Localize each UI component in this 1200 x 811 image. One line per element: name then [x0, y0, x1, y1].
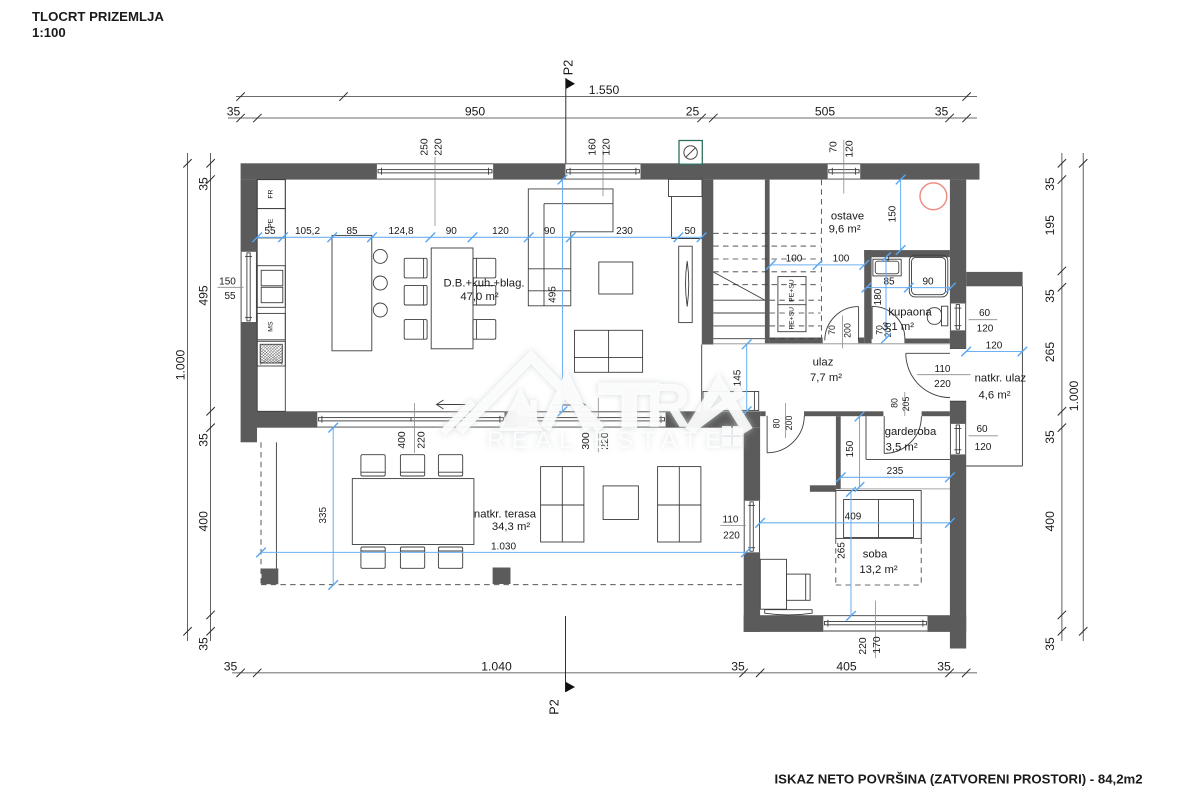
svg-text:110: 110 — [723, 515, 739, 526]
svg-text:70: 70 — [828, 141, 839, 153]
svg-text:80: 80 — [772, 419, 782, 429]
svg-text:1.000: 1.000 — [1067, 381, 1081, 412]
svg-text:120: 120 — [986, 340, 1003, 351]
svg-text:35: 35 — [196, 637, 210, 651]
svg-text:TLOCRT PRIZEMLJA: TLOCRT PRIZEMLJA — [32, 9, 164, 24]
svg-text:265: 265 — [837, 542, 848, 559]
svg-text:120: 120 — [492, 226, 509, 237]
svg-text:950: 950 — [465, 105, 486, 119]
svg-text:495: 495 — [196, 285, 210, 306]
svg-text:35: 35 — [1043, 430, 1057, 444]
svg-text:35: 35 — [731, 660, 745, 674]
svg-text:1.040: 1.040 — [481, 660, 512, 674]
svg-text:47,0 m²: 47,0 m² — [460, 291, 499, 303]
svg-text:120: 120 — [602, 138, 613, 155]
svg-text:220: 220 — [434, 138, 445, 155]
svg-text:ISKAZ NETO POVRŠINA (ZATVORENI: ISKAZ NETO POVRŠINA (ZATVORENI PROSTORI)… — [775, 772, 1143, 787]
svg-text:garderoba: garderoba — [885, 426, 937, 438]
svg-text:50: 50 — [684, 226, 696, 237]
svg-text:90: 90 — [544, 226, 556, 237]
svg-text:495: 495 — [547, 286, 558, 303]
svg-text:D.B.+kuh.+blag.: D.B.+kuh.+blag. — [443, 278, 524, 290]
svg-text:110: 110 — [935, 364, 951, 375]
svg-text:250: 250 — [420, 138, 431, 155]
svg-text:35: 35 — [1043, 637, 1057, 651]
svg-text:195: 195 — [1043, 215, 1057, 236]
svg-text:35: 35 — [227, 105, 241, 119]
svg-text:3,1 m²: 3,1 m² — [882, 321, 914, 333]
svg-text:230: 230 — [616, 226, 633, 237]
svg-text:3,5 m²: 3,5 m² — [886, 441, 918, 453]
svg-text:natkr. terasa: natkr. terasa — [474, 509, 537, 521]
svg-text:60: 60 — [976, 424, 988, 435]
svg-text:400: 400 — [1043, 511, 1057, 532]
svg-text:1.550: 1.550 — [589, 83, 620, 97]
svg-text:9,6 m²: 9,6 m² — [829, 223, 861, 235]
svg-text:405: 405 — [836, 660, 857, 674]
svg-text:124,8: 124,8 — [388, 226, 413, 237]
svg-text:265: 265 — [1043, 342, 1057, 363]
svg-text:P2: P2 — [562, 60, 576, 75]
svg-text:220: 220 — [858, 637, 869, 654]
svg-text:1:100: 1:100 — [32, 25, 66, 40]
svg-text:34,3 m²: 34,3 m² — [492, 521, 531, 533]
svg-text:150: 150 — [845, 440, 856, 457]
svg-text:35: 35 — [1043, 289, 1057, 303]
svg-text:35: 35 — [196, 433, 210, 447]
svg-text:400: 400 — [397, 431, 408, 448]
svg-text:150: 150 — [887, 205, 898, 222]
svg-text:180: 180 — [873, 288, 884, 305]
svg-text:35: 35 — [937, 660, 951, 674]
svg-text:100: 100 — [833, 254, 850, 265]
svg-text:1.030: 1.030 — [491, 541, 516, 552]
svg-text:7,7 m²: 7,7 m² — [810, 372, 842, 384]
svg-text:85: 85 — [346, 226, 358, 237]
svg-text:200: 200 — [843, 323, 853, 338]
svg-text:55: 55 — [264, 226, 276, 237]
svg-text:ulaz: ulaz — [813, 357, 834, 369]
svg-text:85: 85 — [883, 276, 895, 287]
svg-text:120: 120 — [975, 442, 992, 453]
svg-text:60: 60 — [979, 308, 991, 319]
svg-text:220: 220 — [723, 531, 740, 542]
svg-text:235: 235 — [887, 466, 904, 477]
svg-text:35: 35 — [1043, 177, 1057, 191]
svg-text:220: 220 — [934, 379, 951, 390]
svg-text:150: 150 — [219, 277, 236, 288]
svg-text:REAL ESTATE: REAL ESTATE — [487, 427, 729, 454]
svg-text:55: 55 — [224, 291, 236, 302]
svg-text:25: 25 — [686, 105, 700, 119]
svg-text:13,2 m²: 13,2 m² — [859, 564, 898, 576]
svg-text:100: 100 — [786, 254, 803, 265]
svg-text:205: 205 — [901, 397, 911, 412]
svg-text:MS: MS — [268, 321, 275, 332]
svg-text:90: 90 — [446, 226, 458, 237]
svg-text:120: 120 — [844, 140, 855, 157]
svg-text:160: 160 — [588, 138, 599, 155]
svg-text:35: 35 — [196, 177, 210, 191]
svg-text:70: 70 — [827, 325, 837, 335]
svg-text:natkr. ulaz: natkr. ulaz — [975, 373, 1027, 385]
svg-text:335: 335 — [318, 507, 329, 524]
svg-text:145: 145 — [733, 369, 744, 386]
svg-text:35: 35 — [224, 660, 238, 674]
svg-text:4,6 m²: 4,6 m² — [978, 390, 1010, 402]
svg-text:1.000: 1.000 — [173, 350, 187, 381]
svg-text:220: 220 — [416, 431, 427, 448]
svg-text:ostave: ostave — [831, 210, 864, 222]
svg-text:P2: P2 — [548, 699, 562, 714]
svg-text:PE+SU: PE+SU — [789, 279, 796, 302]
svg-text:505: 505 — [815, 105, 836, 119]
svg-text:409: 409 — [845, 512, 862, 523]
svg-text:120: 120 — [977, 323, 994, 334]
svg-text:105,2: 105,2 — [295, 226, 320, 237]
svg-text:90: 90 — [922, 276, 934, 287]
svg-text:FR: FR — [268, 189, 275, 198]
svg-text:PE+SU: PE+SU — [789, 307, 796, 330]
svg-text:400: 400 — [196, 511, 210, 532]
svg-text:200: 200 — [784, 416, 794, 431]
svg-text:80: 80 — [890, 398, 900, 408]
svg-text:170: 170 — [872, 636, 883, 653]
svg-text:35: 35 — [935, 105, 949, 119]
svg-text:kupaona: kupaona — [888, 307, 932, 319]
svg-text:soba: soba — [863, 549, 888, 561]
